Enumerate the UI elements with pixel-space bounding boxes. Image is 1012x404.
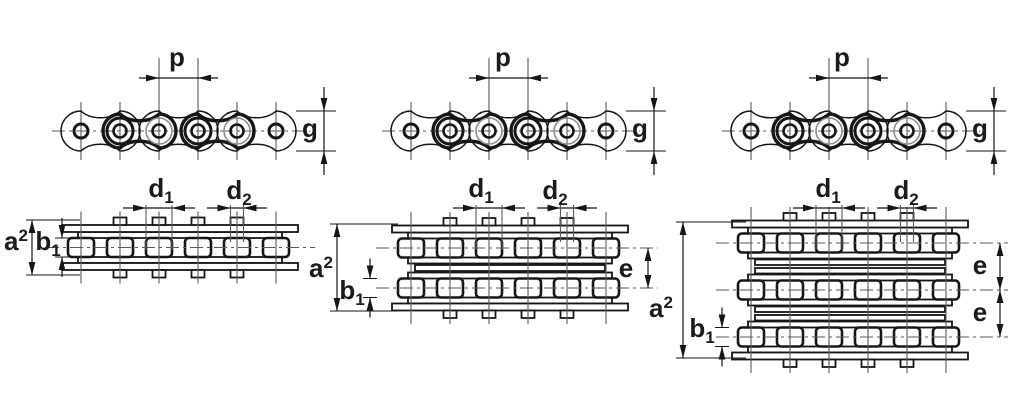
label-d1-simplex: d1 <box>148 175 173 201</box>
label-d2-simplex: d2 <box>226 177 251 203</box>
label-d2-triplex: d2 <box>893 177 918 203</box>
label-g-triplex: g <box>972 115 988 141</box>
label-e-upper-triplex: e <box>973 252 987 278</box>
label-d2-duplex: d2 <box>542 177 567 203</box>
label-pitch-p-triplex: p <box>834 44 850 70</box>
label-g-simplex: g <box>302 115 318 141</box>
diagram-canvas: p g d1 d2 a2 b1 p g d1 d2 a2 b1 e p g d1… <box>0 0 1012 404</box>
label-a2-duplex: a2 <box>309 255 333 281</box>
label-d1-duplex: d1 <box>468 175 493 201</box>
label-a2-triplex: a2 <box>649 295 673 321</box>
triplex-chain-figure <box>676 58 1008 373</box>
label-e-duplex: e <box>619 255 633 281</box>
label-d1-triplex: d1 <box>815 175 840 201</box>
label-e-lower-triplex: e <box>973 299 987 325</box>
duplex-chain-figure <box>330 58 666 324</box>
label-b1-triplex: b1 <box>689 315 714 341</box>
label-b1-duplex: b1 <box>339 277 364 303</box>
label-pitch-p-duplex: p <box>495 44 511 70</box>
simplex-chain-figure <box>26 58 336 284</box>
label-b1-simplex: b1 <box>35 228 60 254</box>
label-pitch-p-simplex: p <box>169 44 185 70</box>
label-g-duplex: g <box>632 115 648 141</box>
label-a2-simplex: a2 <box>4 228 28 254</box>
